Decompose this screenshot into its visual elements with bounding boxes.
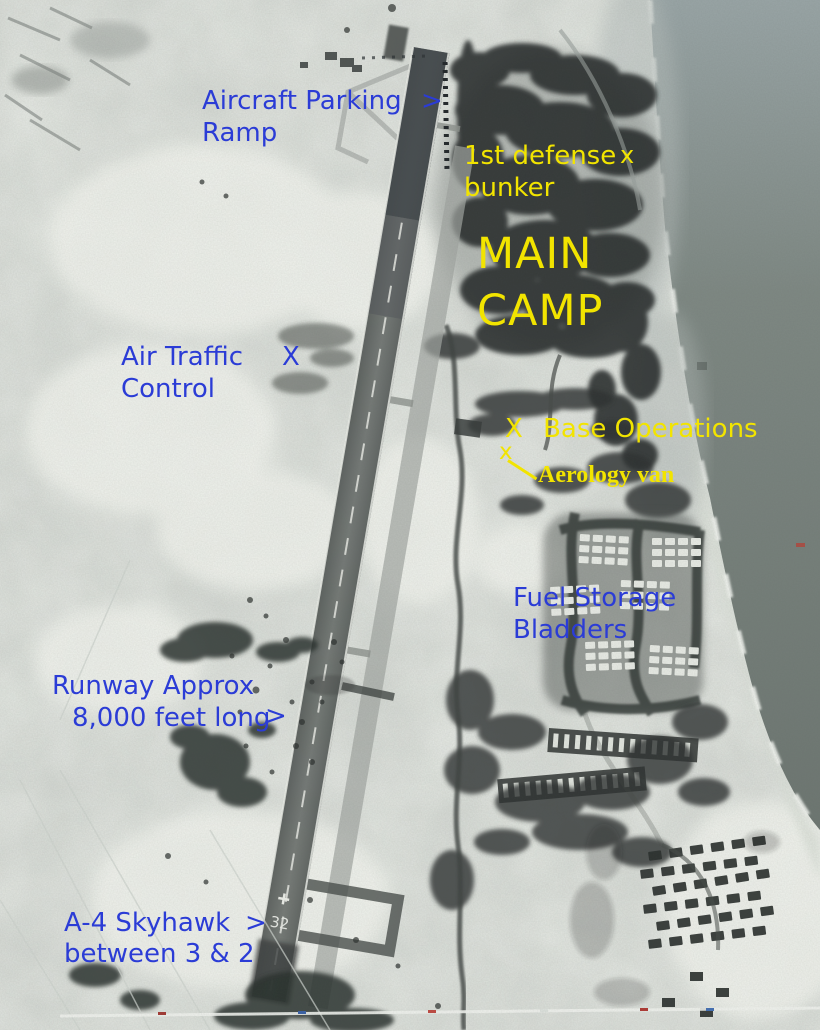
arrow-icon: >: [265, 700, 287, 732]
annotation-runway-length: Runway Approx 8,000 feet long: [52, 670, 270, 734]
film-grain: [0, 0, 820, 1030]
annotation-line: CAMP: [477, 283, 603, 340]
annotation-line: Air Traffic: [121, 341, 243, 373]
annotation-base-operations: X Base Operations: [505, 413, 758, 445]
annotation-line: Ramp: [202, 117, 402, 149]
annotation-a4-skyhawk: A-4 Skyhawk between 3 & 2: [64, 908, 255, 970]
arrow-icon: >: [421, 85, 443, 117]
annotation-line: Control: [121, 373, 243, 405]
annotation-line: Bladders: [513, 614, 676, 646]
arrow-icon: >: [245, 907, 267, 939]
annotation-aircraft-parking-ramp: Aircraft Parking Ramp: [202, 85, 402, 149]
aerial-photo-image: 32: [0, 0, 820, 1030]
annotation-line: Fuel Storage: [513, 582, 676, 614]
annotation-line: Aircraft Parking: [202, 85, 402, 117]
annotation-line: bunker: [464, 172, 616, 204]
annotated-aerial-photo: 32 Aircraft: [0, 0, 820, 1030]
annotation-air-traffic-control: Air Traffic Control: [121, 341, 243, 405]
annotation-line: A-4 Skyhawk: [64, 908, 255, 939]
annotation-aerology-van: Aerology van: [538, 462, 674, 488]
annotation-line: between 3 & 2: [64, 939, 255, 970]
annotation-line: 8,000 feet long: [72, 702, 270, 734]
annotation-line: Runway Approx: [52, 670, 270, 702]
x-marker-icon: X: [282, 341, 300, 373]
x-marker-icon: x: [620, 139, 634, 171]
annotation-defense-bunker: 1st defense bunker: [464, 140, 616, 204]
annotation-line: 1st defense: [464, 140, 616, 172]
annotation-fuel-storage-bladders: Fuel Storage Bladders: [513, 582, 676, 646]
annotation-line: MAIN: [477, 226, 603, 283]
annotation-main-camp: MAIN CAMP: [477, 226, 603, 340]
annotation-line: Base Operations: [543, 414, 758, 444]
